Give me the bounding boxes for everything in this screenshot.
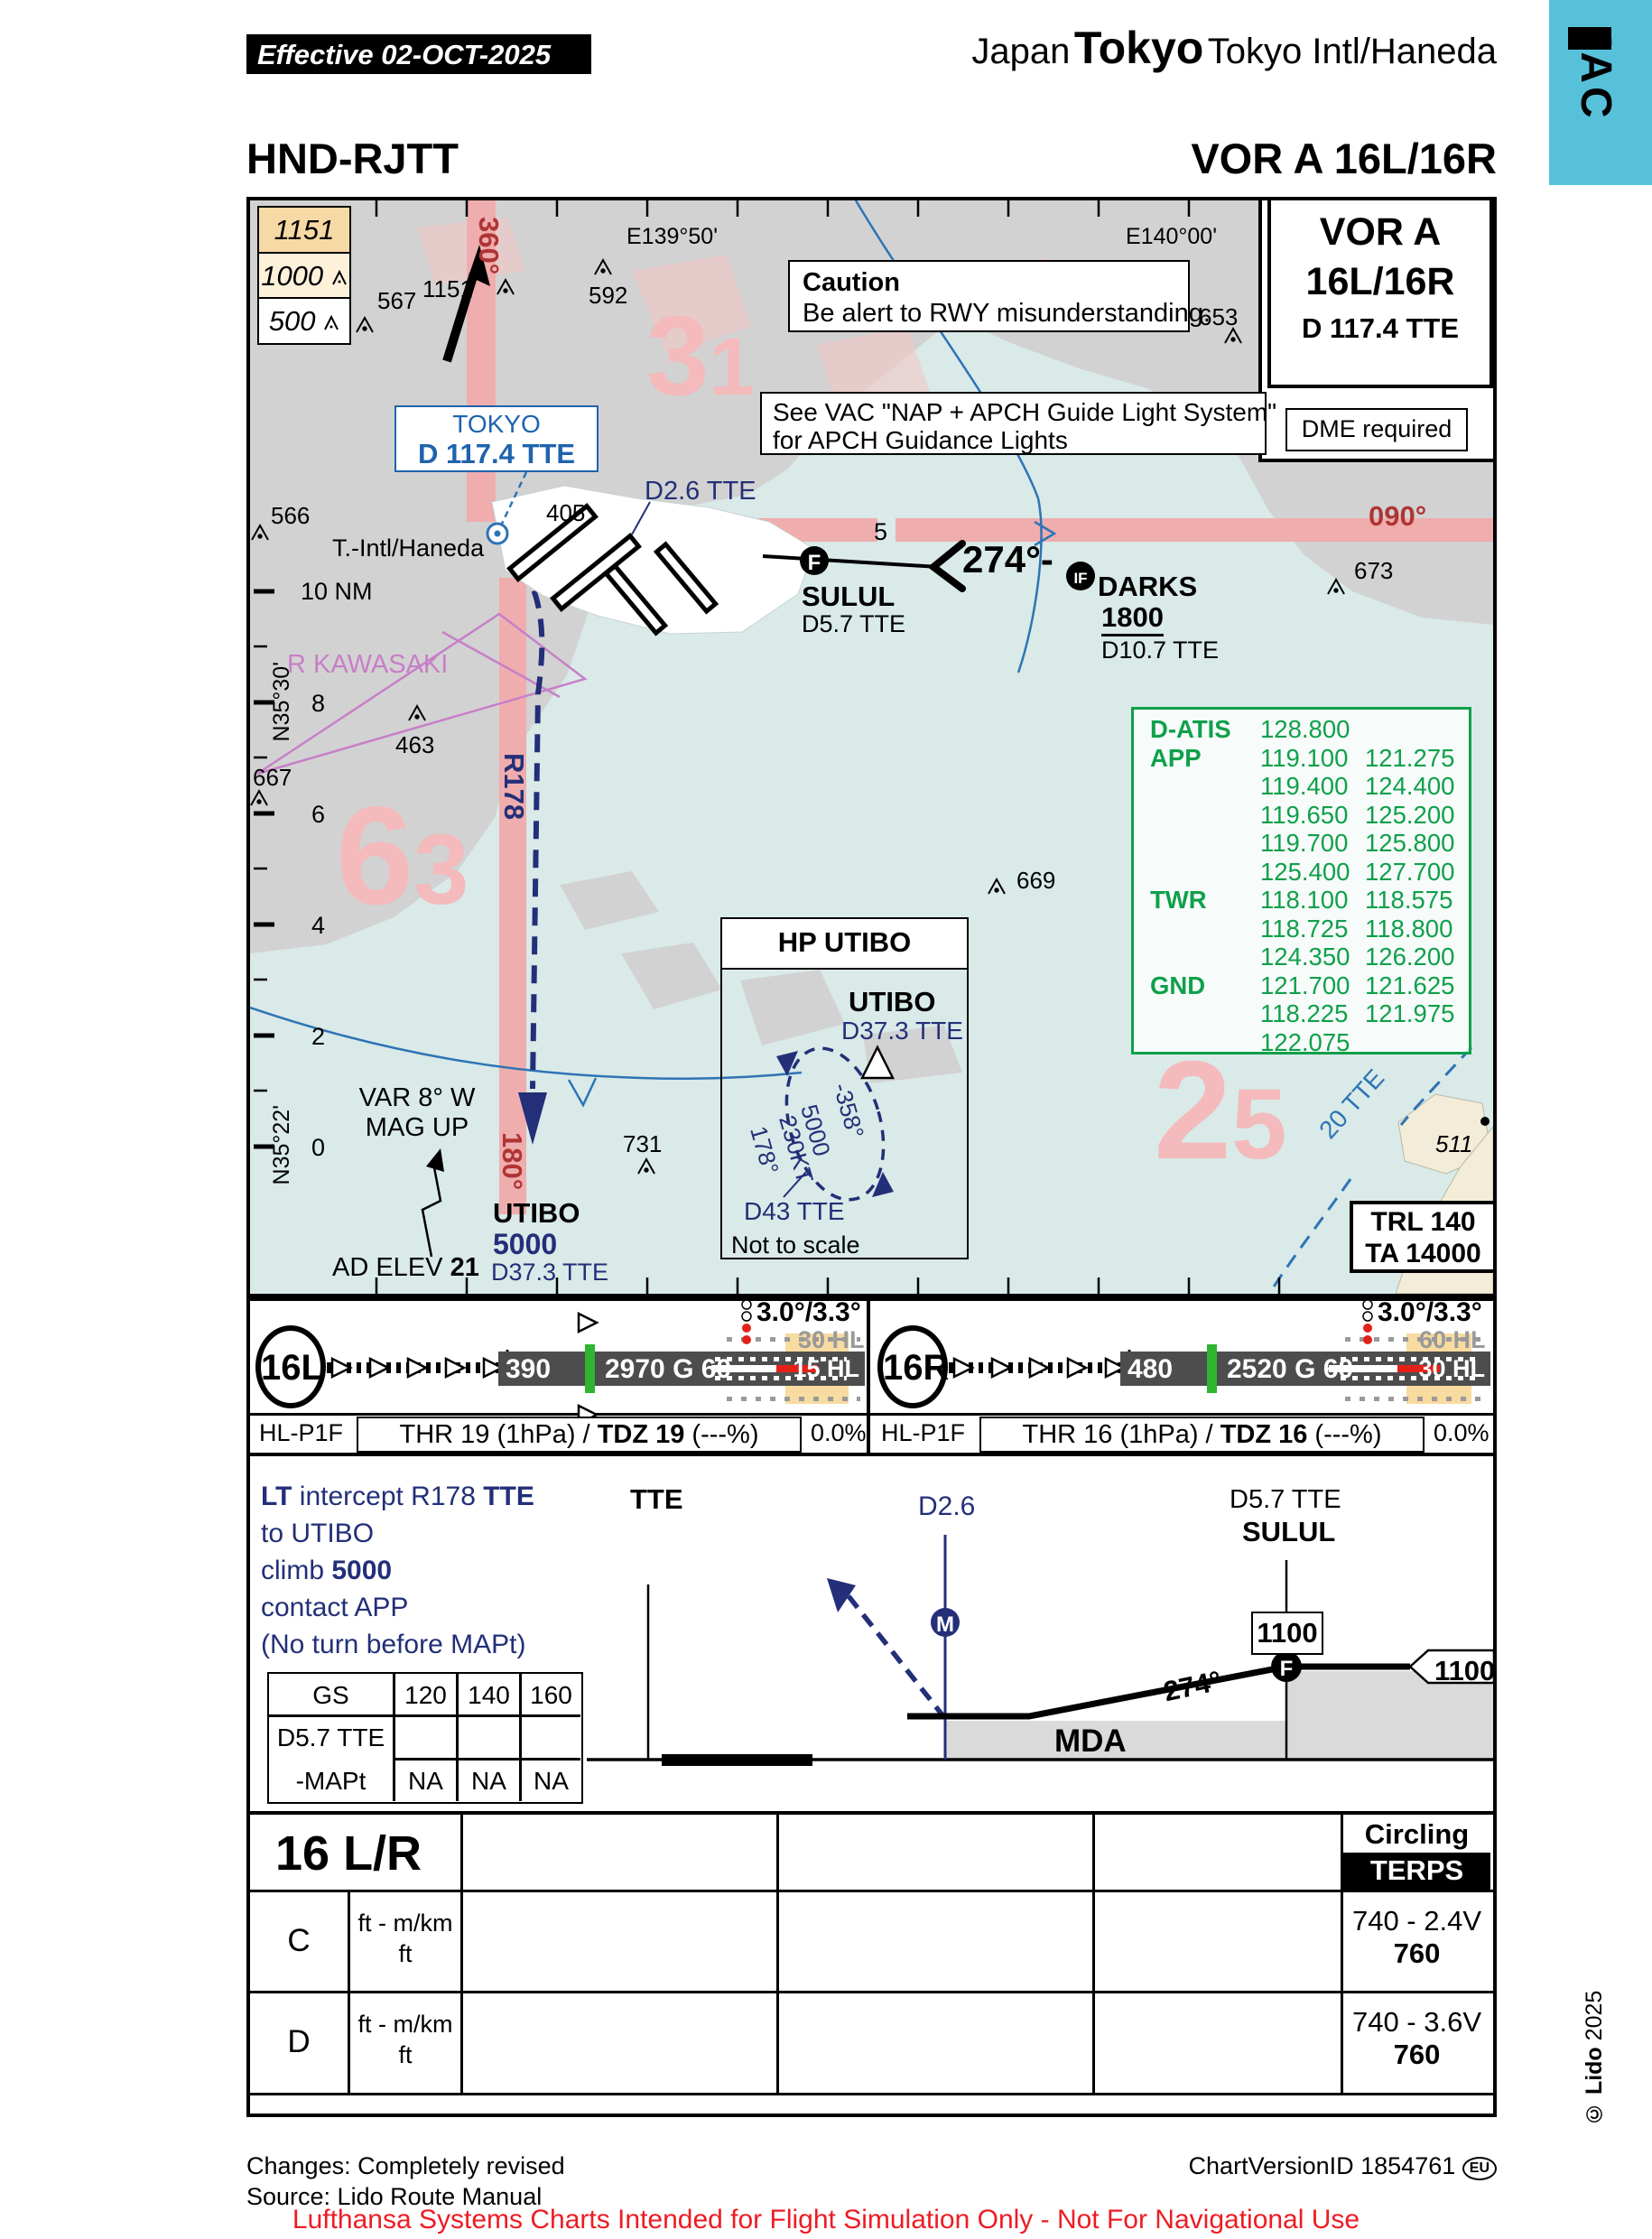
rwy16l-thr-box: THR 19 (1hPa) / TDZ 19 (---%) <box>357 1417 802 1453</box>
fix-sulul-label: SULUL <box>802 581 895 613</box>
variation-arrow-icon <box>422 1148 444 1257</box>
meridian-label: E139°50' <box>626 224 718 250</box>
rwy16l-hl-inside: 15 HL <box>793 1355 859 1383</box>
procedure-id-box: VOR A 16L/16R D 117.4 TTE <box>1267 200 1493 388</box>
dme-required-box: DME required <box>1285 408 1468 451</box>
iac-side-tab: IAC <box>1549 0 1652 185</box>
gs-row-label2: -MAPt <box>269 1767 393 1796</box>
arc-fix-notch <box>569 1078 596 1105</box>
fix-utibo-label: UTIBO <box>493 1197 580 1230</box>
rwy16l-bar: 390 2970 G 60 15 HL <box>498 1352 865 1386</box>
category-c-units: ft - m/kmft <box>350 1908 460 1969</box>
restricted-area-label: R KAWASAKI <box>287 650 448 680</box>
profile-d26-label: D2.6 <box>918 1491 975 1522</box>
spot-elevation: 667 <box>253 764 292 792</box>
legend-band-500: 500 <box>257 297 351 345</box>
fix-utibo-alt: 5000 <box>493 1228 557 1261</box>
registration-mark <box>1568 27 1611 50</box>
radial-label-090: 090° <box>1369 500 1426 533</box>
latitude-label: N35°22' <box>269 1105 295 1185</box>
radial-label-360: 360° <box>472 217 505 274</box>
procedure-id-line1: VOR A <box>1271 208 1490 257</box>
not-to-scale-note: Not to scale <box>731 1231 860 1259</box>
rwy16r-thr-box: THR 16 (1hPa) / TDZ 16 (---%) <box>979 1417 1425 1453</box>
rwy16r-papi-icon <box>1361 1299 1374 1350</box>
nm-label: 10 NM <box>301 578 373 606</box>
profile-sulul-dist: D5.7 TTE <box>1230 1485 1341 1515</box>
island <box>560 871 659 930</box>
nm-label: 2 <box>311 1023 325 1051</box>
category-d-circling: 740 - 3.6V760 <box>1343 2006 1490 2071</box>
minima-table: 16 L/R Circling TERPS C ft - m/kmft 740 … <box>246 1811 1497 2117</box>
procedure-title: VOR A 16L/16R <box>903 134 1497 183</box>
course-arrow-icon <box>933 543 962 589</box>
ta-value: TA 14000 <box>1353 1239 1493 1269</box>
spot-elevation: 669 <box>1016 867 1055 895</box>
obstacle-icon <box>323 314 339 332</box>
footer-changes: Changes: Completely revised <box>246 2152 565 2180</box>
rwy16l-hl-above: 30 HL <box>798 1326 865 1354</box>
rwy16l-green-bar <box>585 1344 595 1393</box>
country-label: Japan <box>971 32 1070 71</box>
rwy16l-papi-angles: 3.0°/3.3° <box>756 1297 861 1328</box>
rwy16l-thr-elev: 390 <box>506 1354 551 1385</box>
mora-25: 25 <box>1154 1040 1286 1180</box>
gs-table: GS 120 140 160 D5.7 TTE -MAPt NA NA NA <box>267 1672 583 1804</box>
rwy16l-centerline-white <box>711 1365 776 1372</box>
holding-fix-dist: D37.3 TTE <box>841 1017 963 1045</box>
spot-elevation: 567 <box>377 287 416 315</box>
vac-note-line2: for APCH Guidance Lights <box>773 426 1254 454</box>
nm-label: 6 <box>311 801 325 829</box>
category-c-label: C <box>250 1923 348 1959</box>
trl-value: TRL 140 <box>1353 1206 1493 1239</box>
profile-sulul-label: SULUL <box>1242 1516 1335 1548</box>
rwy16l-circle: 16L <box>255 1325 326 1408</box>
variation-label: VAR 8° WMAG UP <box>336 1083 498 1143</box>
spot-elevation: 463 <box>395 731 434 759</box>
rwy16l-slope: 0.0% <box>811 1419 867 1447</box>
effective-box: Effective 02-OCT-2025 <box>246 34 591 74</box>
rwy16r-thr-elev: 480 <box>1128 1354 1173 1385</box>
spot-elevation: 673 <box>1354 557 1393 585</box>
footer-version: ChartVersionID 1854761 EU <box>993 2152 1497 2180</box>
profile-mda-label: MDA <box>1054 1723 1127 1760</box>
spot-elevation: 511 <box>1435 1130 1472 1158</box>
category-c-circling: 740 - 2.4V760 <box>1343 1905 1490 1970</box>
minima-runway-label: 16 L/R <box>275 1826 422 1881</box>
island <box>621 943 722 1009</box>
category-d-label: D <box>250 2024 348 2060</box>
rwy16r-approach-lights <box>949 1328 1143 1418</box>
fix-utibo-dist: D37.3 TTE <box>491 1259 608 1287</box>
fix-darks-letter: IF <box>1073 570 1087 587</box>
legend-band-1000: 1000 <box>257 252 351 300</box>
gs-120: 120 <box>395 1681 456 1710</box>
profile-view: M F LT intercept R178 TTE to UTIBO climb… <box>246 1453 1497 1815</box>
mora-63: 63 <box>336 785 469 925</box>
nm-label: 8 <box>311 690 325 718</box>
terps-band: TERPS <box>1343 1853 1490 1890</box>
vor-name: TOKYO <box>396 410 597 439</box>
spot-elevation: 1151 <box>422 275 473 303</box>
trl-ta-box: TRL 140 TA 14000 <box>1350 1201 1493 1273</box>
vac-note-box: See VAC "NAP + APCH Guide Light System" … <box>760 392 1267 455</box>
gs-header: GS <box>269 1681 393 1710</box>
airport-label: T.-Intl/Haneda <box>332 534 484 562</box>
fix-darks-alt: 1800 <box>1101 601 1164 636</box>
rwy16r-slope: 0.0% <box>1434 1419 1490 1447</box>
vor-frequency: D 117.4 TTE <box>396 439 597 469</box>
rwy16r-dots <box>1345 1397 1480 1401</box>
ad-elev-label: AD ELEV 21 <box>332 1253 479 1283</box>
caution-title: Caution <box>803 267 1175 298</box>
eu-mark-icon: EU <box>1462 2157 1497 2180</box>
mora-31: 31 <box>646 300 755 413</box>
elevation-legend: 1151 1000 500 <box>257 206 351 345</box>
meridian-label: E140°00' <box>1126 224 1217 250</box>
rwy16r-hl-code: HL-P1F <box>881 1419 965 1447</box>
fix-sulul-dist: D5.7 TTE <box>802 610 905 638</box>
rwy16r-circle: 16R <box>877 1325 948 1408</box>
rwy16l-papi-icon <box>740 1299 753 1350</box>
profile-altitude-box: 1100 <box>1251 1612 1323 1655</box>
caution-text: Be alert to RWY misunderstanding. <box>803 298 1175 329</box>
missed-approach-text: LT intercept R178 TTE to UTIBO climb 500… <box>261 1478 534 1663</box>
profile-tte-label: TTE <box>630 1483 683 1516</box>
obstacle-icon <box>331 269 348 287</box>
copyright-label: © Lido 2025 <box>1582 1932 1608 2126</box>
gs-value: NA <box>395 1767 456 1796</box>
legend-band-1151: 1151 <box>257 206 351 254</box>
plan-view-map: F IF <box>246 197 1497 1297</box>
nm-label: 4 <box>311 912 325 940</box>
rwy16r-hl-above: 60 HL <box>1419 1326 1486 1354</box>
holding-limit-label: D43 TTE <box>744 1197 845 1226</box>
runway-strips-section: 16L 390 2970 G 60 15 HL 3.0°/3.3° 30 HL … <box>246 1297 1497 1456</box>
d26-label: D2.6 TTE <box>645 477 756 506</box>
fix-darks-label: DARKS <box>1098 571 1197 603</box>
effective-date: Effective 02-OCT-2025 <box>257 39 551 71</box>
mapt-symbol-letter: M <box>936 1612 954 1637</box>
vor-symbol-dot <box>495 531 501 537</box>
circling-header: Circling <box>1343 1818 1490 1851</box>
gs-value: NA <box>522 1767 580 1796</box>
gs-140: 140 <box>459 1681 519 1710</box>
procedure-id-line2: 16L/16R <box>1271 257 1490 307</box>
airport-name-label: Tokyo Intl/Haneda <box>1208 32 1497 71</box>
holding-box-title: HP UTIBO <box>722 919 967 970</box>
caution-box: Caution Be alert to RWY misunderstanding… <box>788 260 1190 332</box>
airport-title: Japan Tokyo Tokyo Intl/Haneda <box>632 22 1497 74</box>
rwy16l-hl-code: HL-P1F <box>259 1419 343 1447</box>
city-label: Tokyo <box>1074 23 1204 73</box>
nm-label: 0 <box>311 1134 325 1162</box>
spot-elevation: 405 <box>546 499 585 527</box>
radial-band-180 <box>499 578 526 1214</box>
simulation-disclaimer: Lufthansa Systems Charts Intended for Fl… <box>0 2205 1652 2235</box>
rwy16r-papi-angles: 3.0°/3.3° <box>1378 1297 1482 1328</box>
gs-row-label1: D5.7 TTE <box>269 1723 393 1752</box>
rwy16r-green-bar <box>1207 1344 1217 1393</box>
rwy16r-bar: 480 2520 G 60 30 HL <box>1120 1352 1490 1386</box>
comm-frequencies-box: D-ATIS128.800 APP119.100121.275 119.4001… <box>1131 707 1471 1054</box>
rwy16r-centerline-white <box>1329 1365 1397 1372</box>
spot-elevation: 566 <box>271 502 310 530</box>
faf-symbol-letter: F <box>1280 1657 1294 1681</box>
rwy16l-approach-lights <box>327 1328 521 1418</box>
course-label: 274°- <box>962 538 1053 581</box>
spot-elevation: 592 <box>589 282 627 310</box>
chart-icao: HND-RJTT <box>246 134 459 183</box>
rwy16l-dots <box>727 1397 860 1401</box>
holding-fix-label: UTIBO <box>849 986 935 1018</box>
fix-sulul-letter: F <box>808 551 821 575</box>
strips-divider <box>867 1301 870 1453</box>
gs-160: 160 <box>522 1681 580 1710</box>
category-d-units: ft - m/kmft <box>350 2009 460 2070</box>
procedure-id-line3: D 117.4 TTE <box>1271 307 1490 350</box>
radial-label-r178: R178 <box>497 753 530 820</box>
fix-darks-dist: D10.7 TTE <box>1101 636 1219 664</box>
spot-elevation: 731 <box>623 1130 662 1158</box>
gs-value: NA <box>459 1767 519 1796</box>
segment-distance: 5 <box>874 518 887 546</box>
spot-511-dot <box>1480 1117 1490 1126</box>
profile-altitude-flag: 1100 <box>1434 1655 1495 1687</box>
radial-label-180: 180° <box>496 1132 528 1190</box>
rwy16r-hl-inside: 30 HL <box>1418 1355 1485 1383</box>
vac-note-line1: See VAC "NAP + APCH Guide Light System" <box>773 398 1254 426</box>
vor-info-box: TOKYO D 117.4 TTE <box>394 405 599 472</box>
